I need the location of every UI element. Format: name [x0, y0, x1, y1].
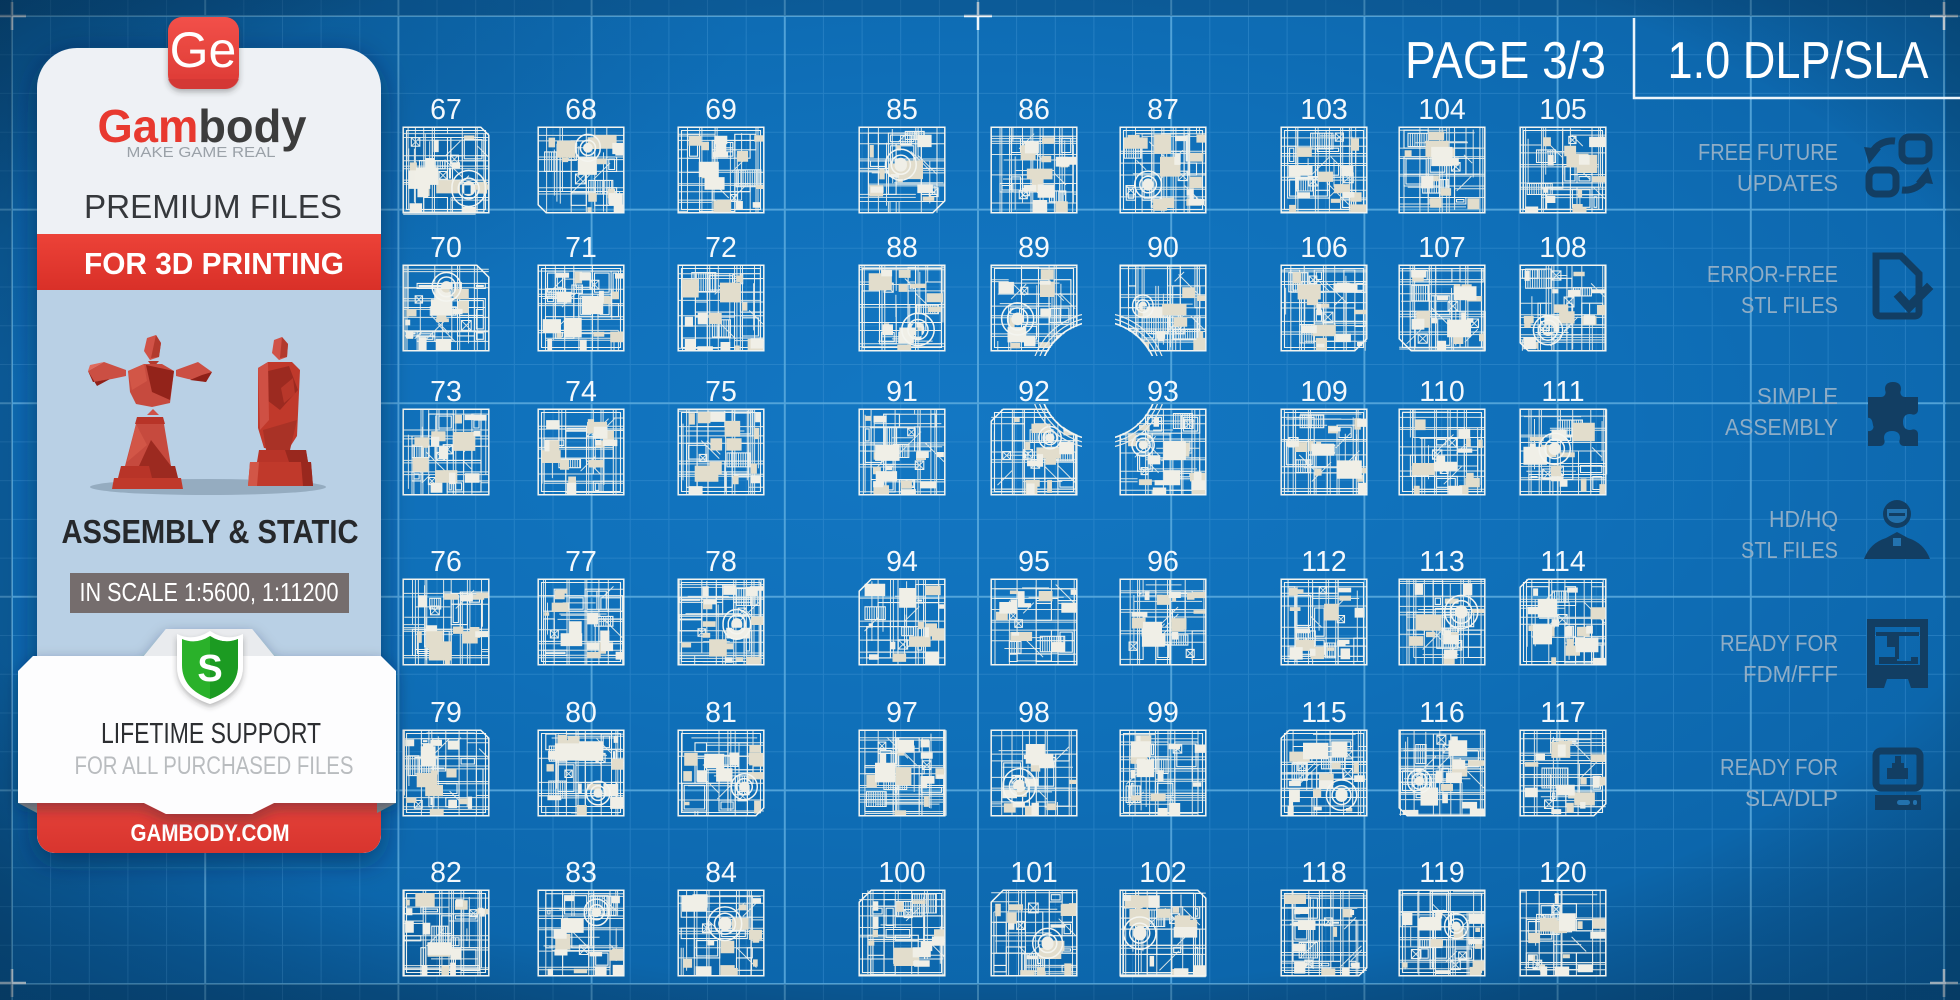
svg-text:115: 115: [1301, 697, 1346, 729]
svg-text:105: 105: [1539, 94, 1587, 126]
svg-text:69: 69: [705, 94, 737, 126]
svg-text:90: 90: [1147, 232, 1179, 264]
svg-text:ERROR-FREE: ERROR-FREE: [1707, 261, 1838, 287]
svg-text:110: 110: [1419, 376, 1464, 408]
svg-text:78: 78: [705, 546, 737, 578]
svg-text:UPDATES: UPDATES: [1737, 170, 1838, 196]
svg-text:READY FOR: READY FOR: [1720, 754, 1838, 780]
svg-text:95: 95: [1018, 546, 1050, 578]
svg-text:91: 91: [886, 376, 918, 408]
svg-text:STL FILES: STL FILES: [1741, 292, 1838, 318]
svg-text:Ge: Ge: [170, 22, 237, 78]
svg-text:118: 118: [1301, 857, 1346, 889]
svg-text:81: 81: [705, 697, 737, 729]
svg-text:107: 107: [1418, 232, 1466, 264]
svg-text:108: 108: [1539, 232, 1587, 264]
svg-text:83: 83: [565, 857, 597, 889]
svg-text:100: 100: [878, 857, 926, 889]
svg-text:97: 97: [886, 697, 918, 729]
svg-text:STL FILES: STL FILES: [1741, 537, 1838, 563]
svg-text:82: 82: [430, 857, 462, 889]
svg-text:96: 96: [1147, 546, 1179, 578]
svg-text:SIMPLE: SIMPLE: [1757, 383, 1838, 409]
svg-text:101: 101: [1010, 857, 1058, 889]
svg-text:68: 68: [565, 94, 597, 126]
svg-text:PREMIUM FILES: PREMIUM FILES: [84, 188, 342, 225]
svg-text:72: 72: [705, 232, 737, 264]
svg-text:88: 88: [886, 232, 918, 264]
svg-text:119: 119: [1419, 857, 1464, 889]
svg-text:113: 113: [1419, 546, 1464, 578]
svg-text:79: 79: [430, 697, 462, 729]
svg-text:GAMBODY.COM: GAMBODY.COM: [131, 820, 290, 847]
svg-text:85: 85: [886, 94, 918, 126]
svg-text:104: 104: [1418, 94, 1466, 126]
svg-text:FREE FUTURE: FREE FUTURE: [1698, 139, 1838, 165]
svg-text:114: 114: [1540, 546, 1586, 578]
svg-text:77: 77: [565, 546, 597, 578]
svg-text:87: 87: [1147, 94, 1179, 126]
svg-text:98: 98: [1018, 697, 1050, 729]
svg-text:89: 89: [1018, 232, 1050, 264]
svg-text:PAGE 3/3: PAGE 3/3: [1405, 32, 1606, 90]
svg-text:FOR 3D PRINTING: FOR 3D PRINTING: [84, 246, 344, 281]
svg-text:IN SCALE 1:5600, 1:11200: IN SCALE 1:5600, 1:11200: [80, 577, 339, 607]
svg-text:103: 103: [1300, 94, 1348, 126]
svg-text:73: 73: [430, 376, 462, 408]
svg-text:ASSEMBLY & STATIC: ASSEMBLY & STATIC: [62, 513, 359, 550]
svg-text:93: 93: [1147, 376, 1179, 408]
svg-text:102: 102: [1139, 857, 1187, 889]
svg-text:94: 94: [886, 546, 918, 578]
svg-text:80: 80: [565, 697, 597, 729]
svg-text:71: 71: [565, 232, 597, 264]
svg-text:74: 74: [565, 376, 597, 408]
svg-text:READY FOR: READY FOR: [1720, 630, 1838, 656]
svg-text:106: 106: [1300, 232, 1348, 264]
svg-text:117: 117: [1540, 697, 1585, 729]
svg-text:67: 67: [430, 94, 462, 126]
svg-text:76: 76: [430, 546, 462, 578]
svg-text:120: 120: [1539, 857, 1587, 889]
svg-text:84: 84: [705, 857, 737, 889]
svg-text:116: 116: [1419, 697, 1464, 729]
svg-text:70: 70: [430, 232, 462, 264]
svg-text:LIFETIME SUPPORT: LIFETIME SUPPORT: [101, 718, 321, 750]
svg-text:86: 86: [1018, 94, 1050, 126]
svg-text:HD/HQ: HD/HQ: [1769, 506, 1838, 532]
svg-text:MAKE GAME REAL: MAKE GAME REAL: [127, 145, 276, 161]
svg-text:SLA/DLP: SLA/DLP: [1745, 785, 1838, 811]
svg-text:1.0 DLP/SLA: 1.0 DLP/SLA: [1668, 32, 1929, 90]
svg-text:FDM/FFF: FDM/FFF: [1743, 661, 1838, 687]
svg-text:75: 75: [705, 376, 737, 408]
svg-text:99: 99: [1147, 697, 1179, 729]
svg-text:112: 112: [1301, 546, 1346, 578]
svg-text:S: S: [197, 648, 222, 690]
svg-text:ASSEMBLY: ASSEMBLY: [1725, 414, 1838, 440]
svg-text:111: 111: [1541, 376, 1584, 408]
svg-text:109: 109: [1300, 376, 1348, 408]
svg-text:FOR ALL PURCHASED FILES: FOR ALL PURCHASED FILES: [75, 752, 354, 780]
